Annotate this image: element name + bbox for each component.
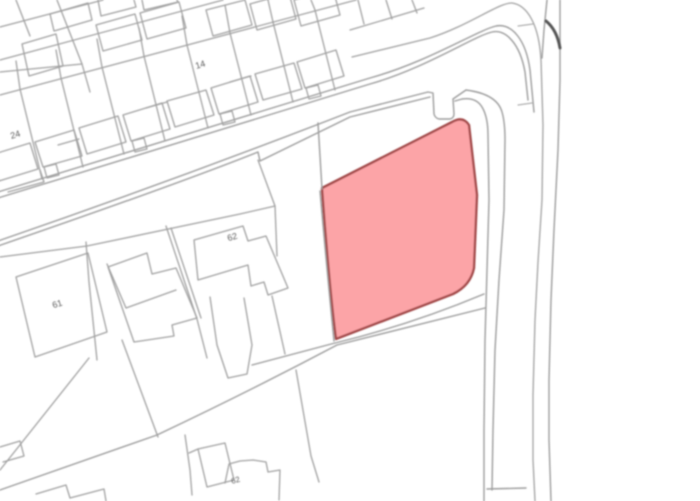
svg-text:61: 61 (51, 298, 64, 310)
svg-text:62: 62 (230, 475, 242, 486)
svg-text:24: 24 (9, 128, 22, 140)
svg-text:14: 14 (194, 58, 207, 70)
svg-text:62: 62 (226, 231, 239, 243)
